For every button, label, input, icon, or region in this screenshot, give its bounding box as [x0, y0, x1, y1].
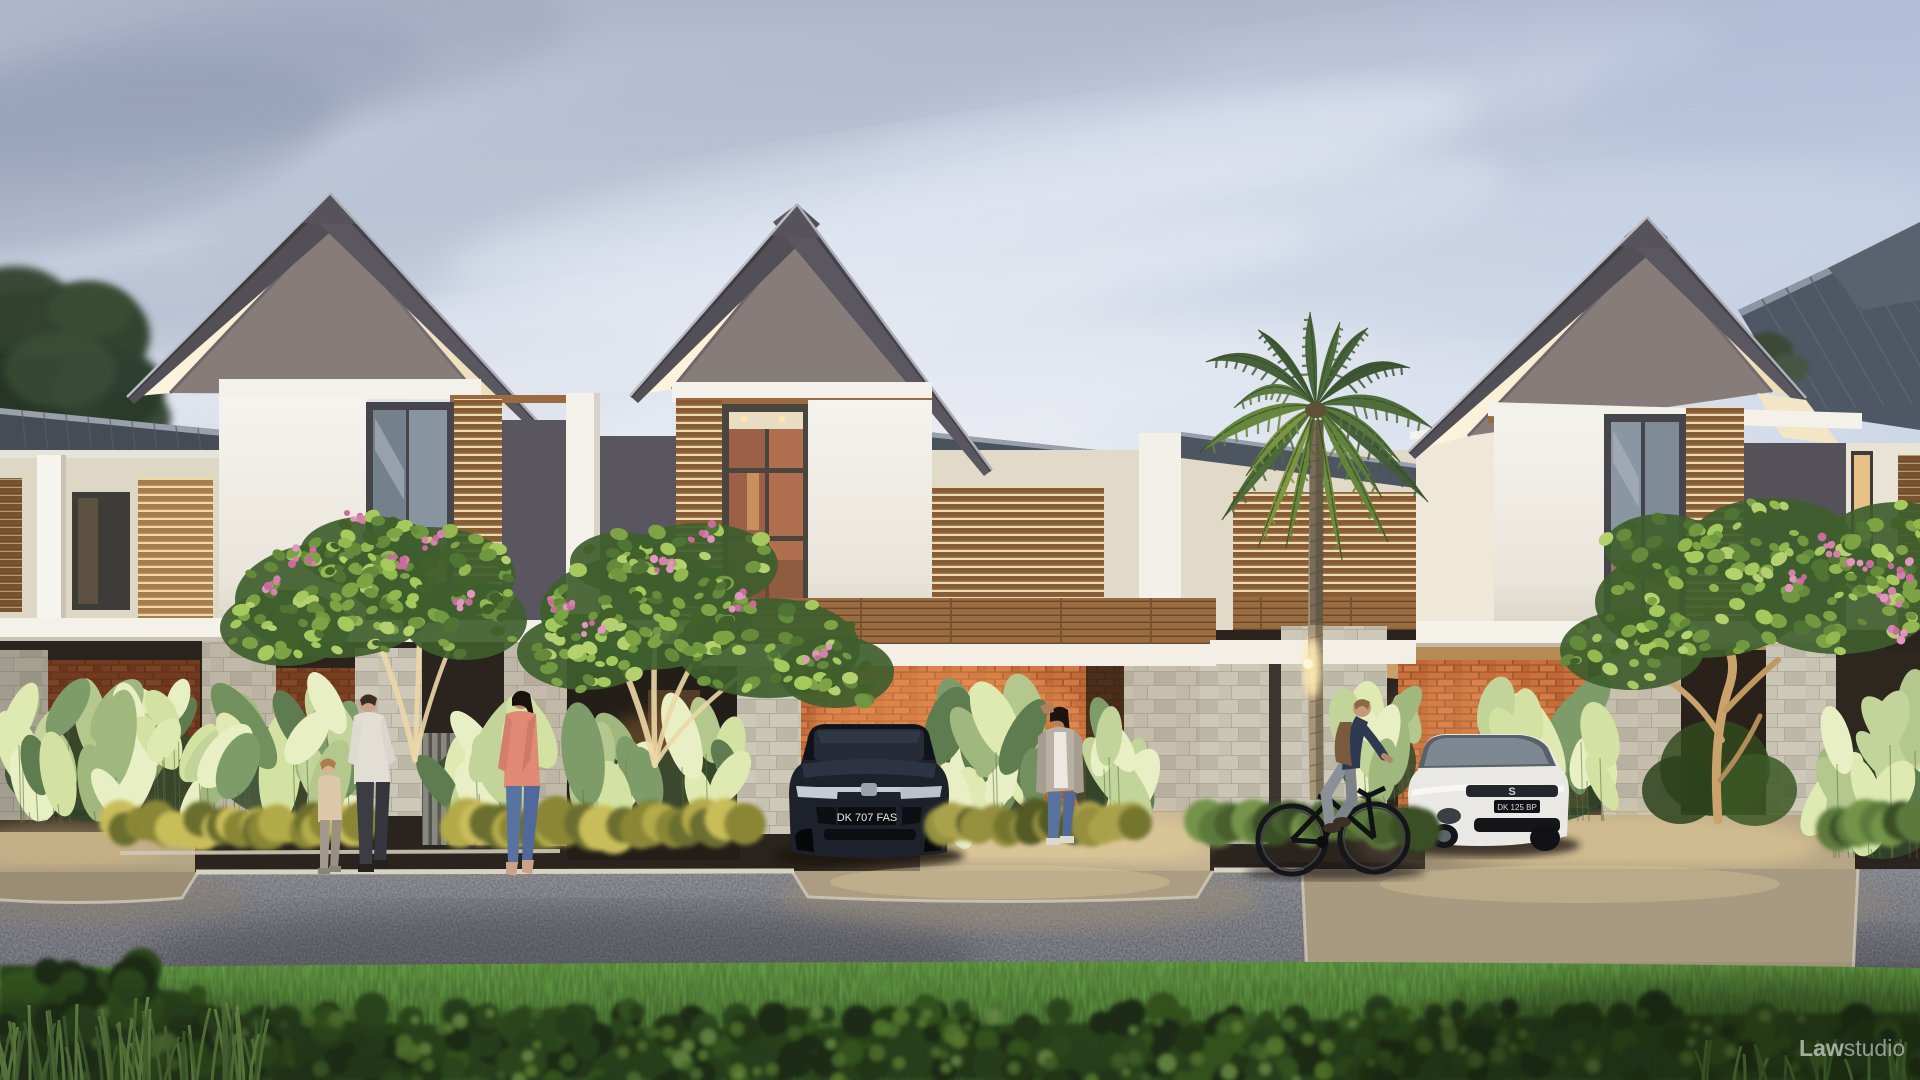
svg-text:DK 125 BP: DK 125 BP [1497, 803, 1537, 812]
svg-text:DK 707 FAS: DK 707 FAS [837, 812, 898, 824]
svg-text:Lawstudio: Lawstudio [1799, 1035, 1905, 1061]
svg-text:S: S [1508, 786, 1515, 798]
